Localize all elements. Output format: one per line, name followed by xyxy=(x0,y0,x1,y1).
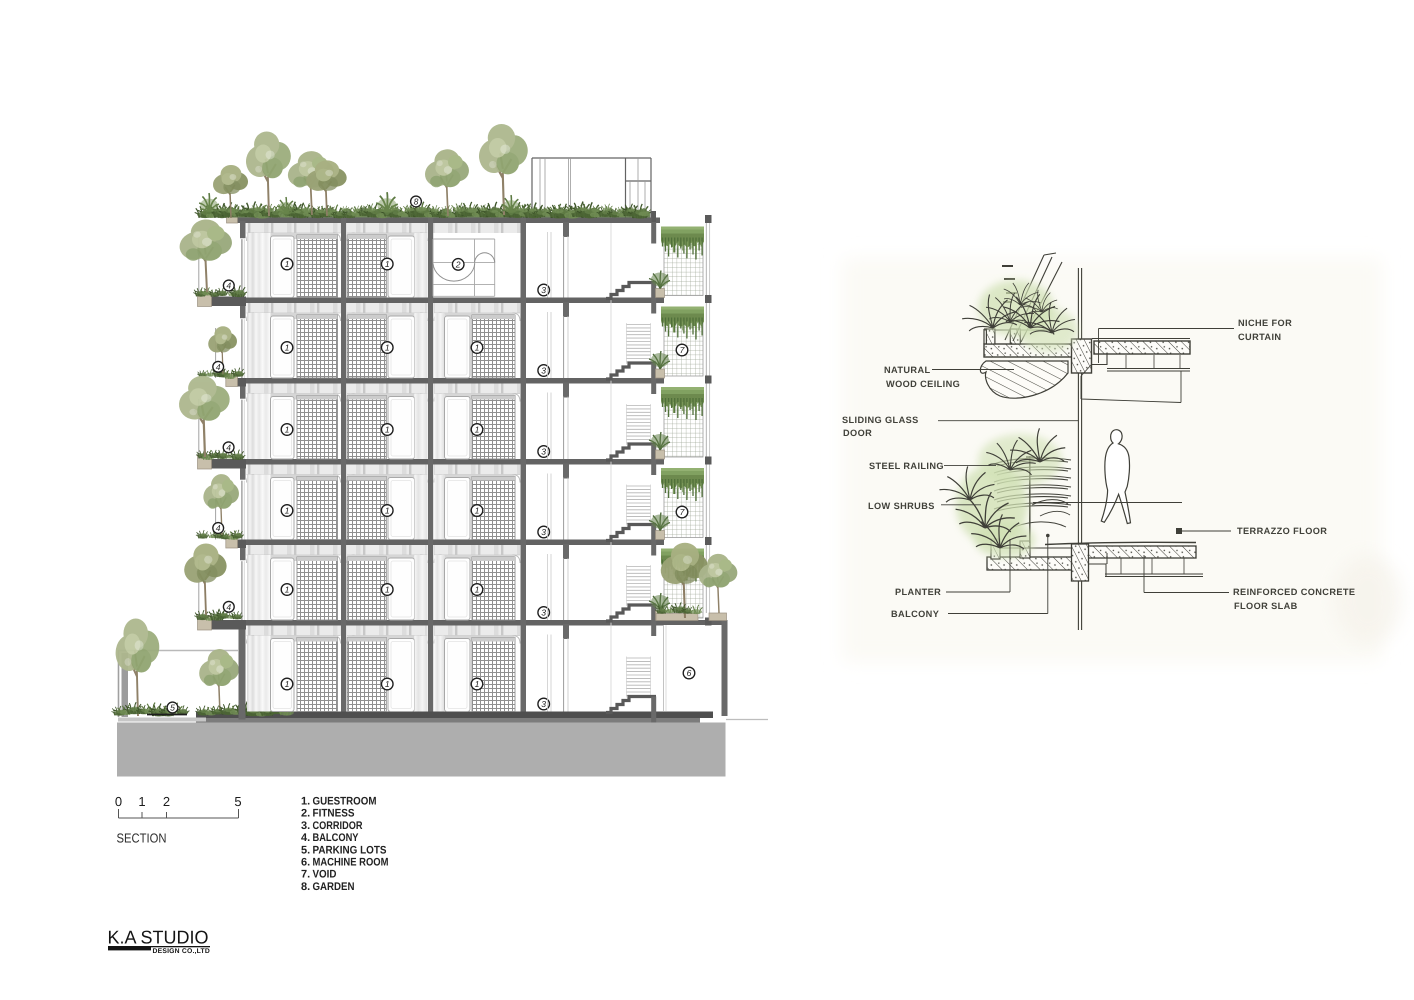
svg-text:STEEL RAILING: STEEL RAILING xyxy=(869,461,944,471)
svg-text:1: 1 xyxy=(285,506,290,516)
svg-text:6: 6 xyxy=(687,668,692,678)
svg-text:4.: 4. xyxy=(301,832,310,844)
svg-text:DESIGN CO.,LTD: DESIGN CO.,LTD xyxy=(153,948,210,955)
svg-text:3: 3 xyxy=(541,608,546,618)
svg-text:1: 1 xyxy=(285,585,290,595)
svg-text:LOW SHRUBS: LOW SHRUBS xyxy=(868,501,935,511)
svg-text:1: 1 xyxy=(285,425,290,435)
svg-text:1: 1 xyxy=(385,585,390,595)
svg-text:PLANTER: PLANTER xyxy=(895,587,941,597)
svg-text:4: 4 xyxy=(216,362,221,372)
svg-text:GARDEN: GARDEN xyxy=(313,881,355,893)
svg-text:1: 1 xyxy=(385,679,390,689)
svg-text:CURTAIN: CURTAIN xyxy=(1238,332,1281,342)
svg-text:2: 2 xyxy=(163,794,170,809)
svg-text:PARKING LOTS: PARKING LOTS xyxy=(313,844,387,856)
svg-text:1: 1 xyxy=(285,679,290,689)
svg-text:3: 3 xyxy=(541,527,546,537)
svg-text:BALCONY: BALCONY xyxy=(891,609,939,619)
svg-text:3: 3 xyxy=(541,699,546,709)
svg-text:TERRAZZO FLOOR: TERRAZZO FLOOR xyxy=(1237,526,1327,536)
svg-text:1: 1 xyxy=(385,259,390,269)
svg-text:1: 1 xyxy=(138,794,145,809)
svg-text:4: 4 xyxy=(226,442,231,452)
svg-text:1: 1 xyxy=(475,343,480,353)
svg-text:1: 1 xyxy=(475,585,480,595)
svg-text:SECTION: SECTION xyxy=(117,831,167,846)
svg-text:1.: 1. xyxy=(301,796,310,808)
svg-text:2.: 2. xyxy=(301,808,310,820)
svg-text:1: 1 xyxy=(385,343,390,353)
svg-text:FITNESS: FITNESS xyxy=(313,808,355,820)
svg-text:8: 8 xyxy=(414,197,419,207)
svg-text:4: 4 xyxy=(226,602,231,612)
svg-text:GUESTROOM: GUESTROOM xyxy=(313,796,377,808)
svg-text:7.: 7. xyxy=(301,869,310,881)
svg-text:1: 1 xyxy=(385,425,390,435)
svg-text:3: 3 xyxy=(541,366,546,376)
svg-text:1: 1 xyxy=(475,679,480,689)
svg-text:1: 1 xyxy=(475,506,480,516)
svg-text:WOOD CEILING: WOOD CEILING xyxy=(886,379,960,389)
svg-text:K.A STUDIO: K.A STUDIO xyxy=(108,927,209,948)
svg-text:MACHINE ROOM: MACHINE ROOM xyxy=(313,857,389,869)
svg-text:DOOR: DOOR xyxy=(843,428,872,438)
svg-text:NICHE FOR: NICHE FOR xyxy=(1238,318,1292,328)
svg-text:5.: 5. xyxy=(301,844,310,856)
svg-text:1: 1 xyxy=(285,343,290,353)
svg-text:REINFORCED CONCRETE: REINFORCED CONCRETE xyxy=(1233,587,1355,597)
svg-text:0: 0 xyxy=(115,794,122,809)
svg-text:5: 5 xyxy=(170,703,175,713)
svg-text:3: 3 xyxy=(541,447,546,457)
svg-text:1: 1 xyxy=(285,259,290,269)
svg-text:6.: 6. xyxy=(301,857,310,869)
svg-text:3: 3 xyxy=(541,285,546,295)
svg-text:FLOOR SLAB: FLOOR SLAB xyxy=(1234,601,1298,611)
svg-text:8.: 8. xyxy=(301,881,310,893)
svg-text:NATURAL: NATURAL xyxy=(884,365,931,375)
svg-text:3.: 3. xyxy=(301,820,310,832)
svg-text:SLIDING GLASS: SLIDING GLASS xyxy=(842,415,919,425)
svg-text:BALCONY: BALCONY xyxy=(313,832,360,844)
svg-text:1: 1 xyxy=(475,425,480,435)
svg-text:5: 5 xyxy=(234,794,241,809)
svg-text:4: 4 xyxy=(216,523,221,533)
svg-text:2: 2 xyxy=(455,260,461,270)
svg-text:VOID: VOID xyxy=(313,869,337,881)
svg-text:1: 1 xyxy=(385,506,390,516)
svg-text:4: 4 xyxy=(226,281,231,291)
svg-text:CORRIDOR: CORRIDOR xyxy=(313,820,363,832)
